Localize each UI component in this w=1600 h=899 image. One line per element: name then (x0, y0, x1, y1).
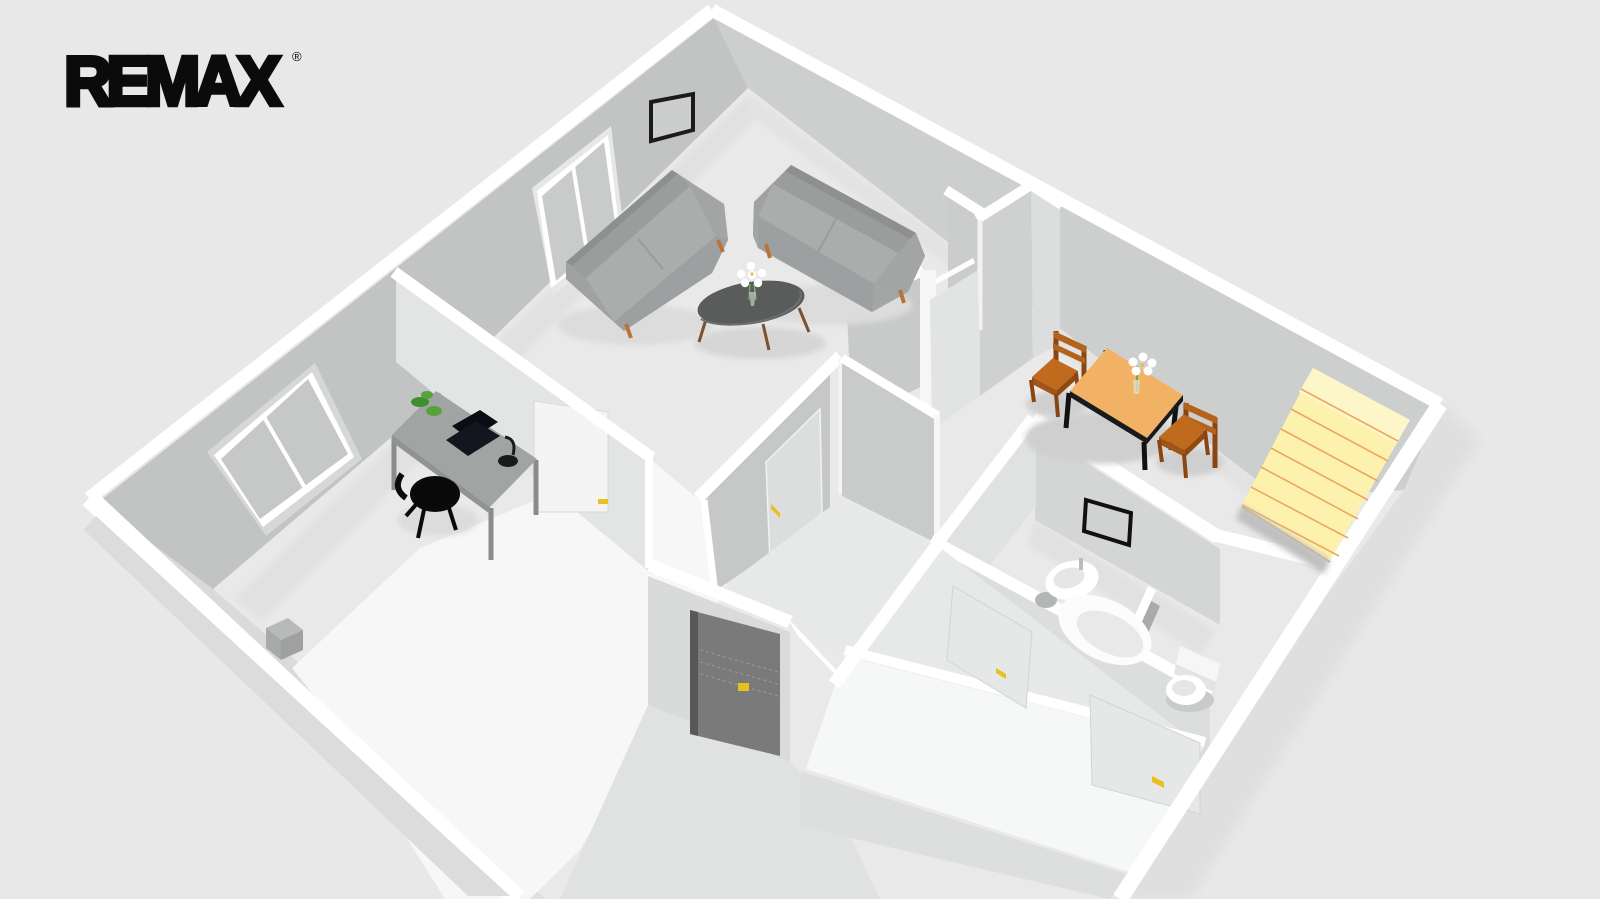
svg-text:®: ® (292, 49, 302, 64)
svg-text:REMAX: REMAX (64, 42, 281, 120)
